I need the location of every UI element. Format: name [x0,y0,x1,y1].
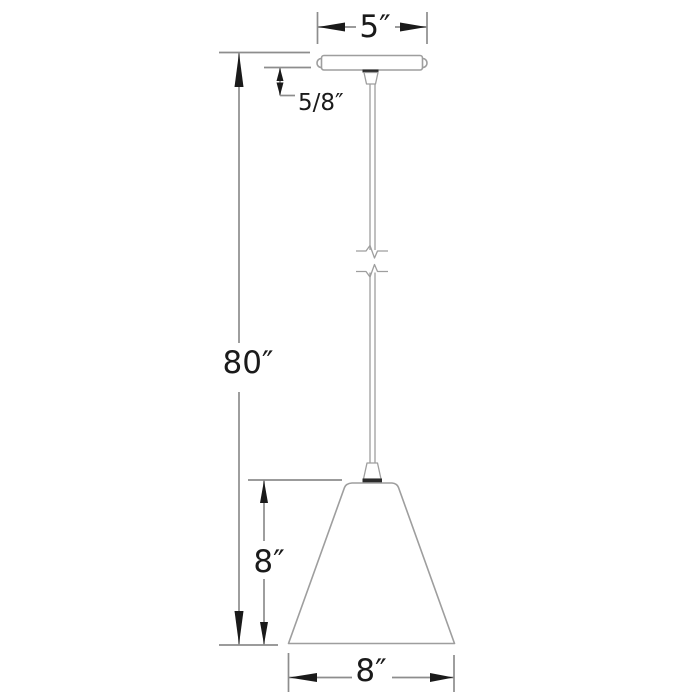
canopy-body [322,56,423,71]
break-symbol-lower [356,265,388,278]
dimension-shade-width: 8″ [289,653,455,692]
strain-relief-cone [364,73,378,85]
pendant-light-diagram: 5″ 5/8″ 80″ 8″ 8″ [0,0,700,700]
cone-shade [289,483,455,644]
arrowhead-down-icon [260,622,268,645]
dimension-canopy-width: 5″ [318,9,428,45]
arrowhead-down-icon [277,83,284,96]
break-symbol-upper [356,246,388,259]
arrowhead-right-icon [400,23,427,32]
dimension-canopy-height: 5/8″ [264,68,344,117]
shade-height-label: 8″ [253,544,284,580]
socket-cup [364,463,382,479]
arrowhead-left-icon [318,23,345,32]
canopy-height-label: 5/8″ [298,90,344,116]
overall-height-label: 80″ [222,345,273,381]
arrowhead-up-icon [260,481,268,504]
ceiling-canopy [317,56,427,71]
socket-assembly [363,463,383,483]
shade-width-label: 8″ [355,653,386,689]
arrowhead-up-icon [235,53,244,87]
arrowhead-up-icon [277,68,284,81]
cord-strain-relief [363,70,379,85]
canopy-width-label: 5″ [359,9,390,45]
arrowhead-left-icon [289,673,317,682]
dimension-drawing: 5″ 5/8″ 80″ 8″ 8″ [0,0,700,700]
suspension-stem [356,84,388,463]
arrowhead-right-icon [430,673,454,682]
arrowhead-down-icon [235,611,244,645]
